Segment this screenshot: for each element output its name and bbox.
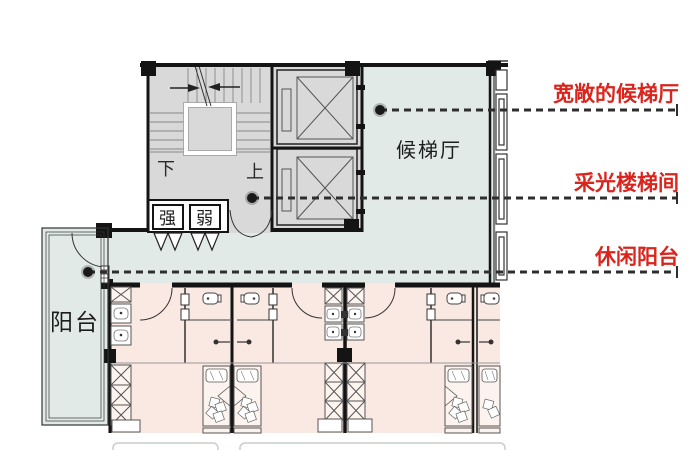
stair-down-label: 下 [157,159,175,179]
lobby-label: 候梯厅 [396,139,462,162]
weak-electric-label: 弱 [196,209,213,228]
bottom-cut-boxes [113,443,505,450]
leader-dot-stairwell [247,193,257,203]
annotation-balcony: 休闲阳台 [594,245,679,269]
stair-vestibule-zone [228,200,272,233]
leader-dot-lobby [375,105,385,115]
annotation-lobby: 宽敞的候梯厅 [553,82,679,106]
strong-electric-label: 强 [159,209,176,228]
floor-plan-drawing: 下 上 强 弱 [0,0,698,450]
stair-up-label: 上 [246,162,264,182]
balcony-label: 阳台 [50,309,100,335]
annotation-stairwell: 采光楼梯间 [574,171,679,195]
right-edge-cut-units [496,70,507,280]
floor-plan-page: 下 上 强 弱 [0,0,698,450]
leader-dot-balcony [83,267,93,277]
